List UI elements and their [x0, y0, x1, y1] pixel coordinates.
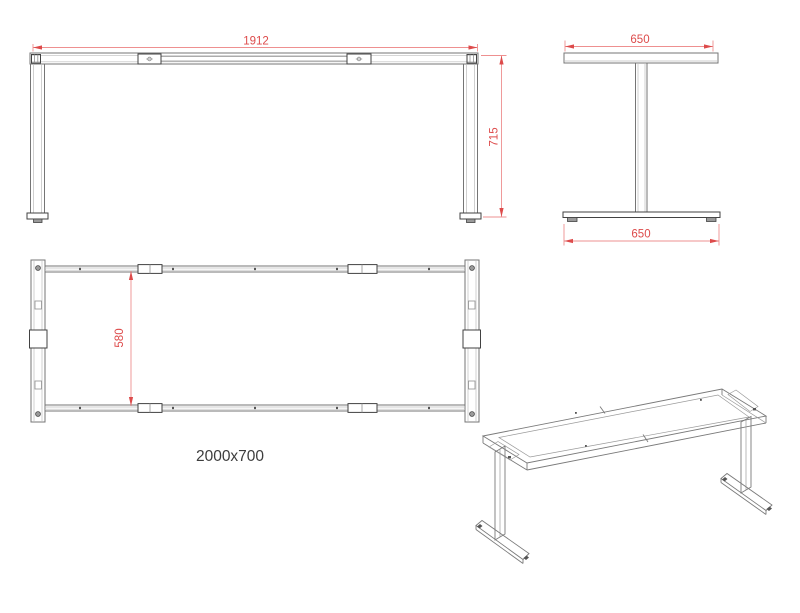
plan-bottom-rail: [45, 404, 465, 413]
front-left-glide: [34, 219, 43, 223]
iso-left-bracket: [489, 442, 519, 461]
front-top-beam: [30, 53, 478, 64]
front-right-leg: [460, 64, 481, 223]
plan-top-rail: [45, 265, 465, 274]
side-top-dimension-label: 650: [630, 34, 649, 46]
drawing-canvas: 1912: [0, 0, 800, 613]
side-bottom-dimension-label: 650: [631, 229, 650, 241]
plan-left-foot: [30, 260, 48, 422]
front-width-dimension-label: 1912: [243, 36, 269, 48]
plan-depth-dimension: 580: [114, 271, 133, 406]
plan-right-column-section: [463, 330, 481, 348]
side-column: [636, 63, 648, 212]
plan-left-screw-bottom: [36, 412, 41, 417]
iso-top-frame: [483, 389, 766, 470]
plan-left-screw-top: [36, 266, 41, 271]
plan-view: 580: [30, 260, 481, 422]
side-view: 650 650: [563, 34, 720, 246]
front-right-glide: [467, 219, 476, 223]
technical-drawing-page: 1912: [0, 0, 800, 613]
frame-size-caption: 2000x700: [196, 448, 264, 465]
plan-right-screw-bottom: [470, 412, 475, 417]
plan-left-column-section: [30, 330, 48, 348]
side-right-glide: [707, 218, 717, 222]
side-left-glide: [568, 218, 578, 222]
front-left-foot: [27, 213, 48, 219]
side-top-dimension: 650: [565, 34, 713, 52]
side-top-beam: [564, 53, 718, 63]
front-right-foot: [460, 213, 481, 219]
plan-right-foot: [463, 260, 481, 422]
side-bottom-dimension: 650: [564, 224, 719, 246]
front-height-dimension-label: 715: [489, 127, 501, 146]
front-width-dimension: 1912: [33, 36, 478, 52]
iso-right-leg: [721, 417, 772, 515]
front-view: 1912: [27, 36, 507, 223]
front-mount-plate-right: [347, 54, 371, 64]
iso-left-foot: [476, 521, 529, 560]
iso-left-leg: [476, 446, 529, 564]
front-mount-plate-left: [138, 54, 161, 64]
front-left-leg: [27, 64, 48, 223]
plan-depth-dimension-label: 580: [114, 328, 126, 347]
side-foot: [563, 212, 720, 222]
isometric-view: [476, 389, 772, 564]
front-height-dimension: 715: [481, 56, 507, 218]
plan-right-screw-top: [470, 266, 475, 271]
iso-right-foot: [721, 474, 772, 511]
